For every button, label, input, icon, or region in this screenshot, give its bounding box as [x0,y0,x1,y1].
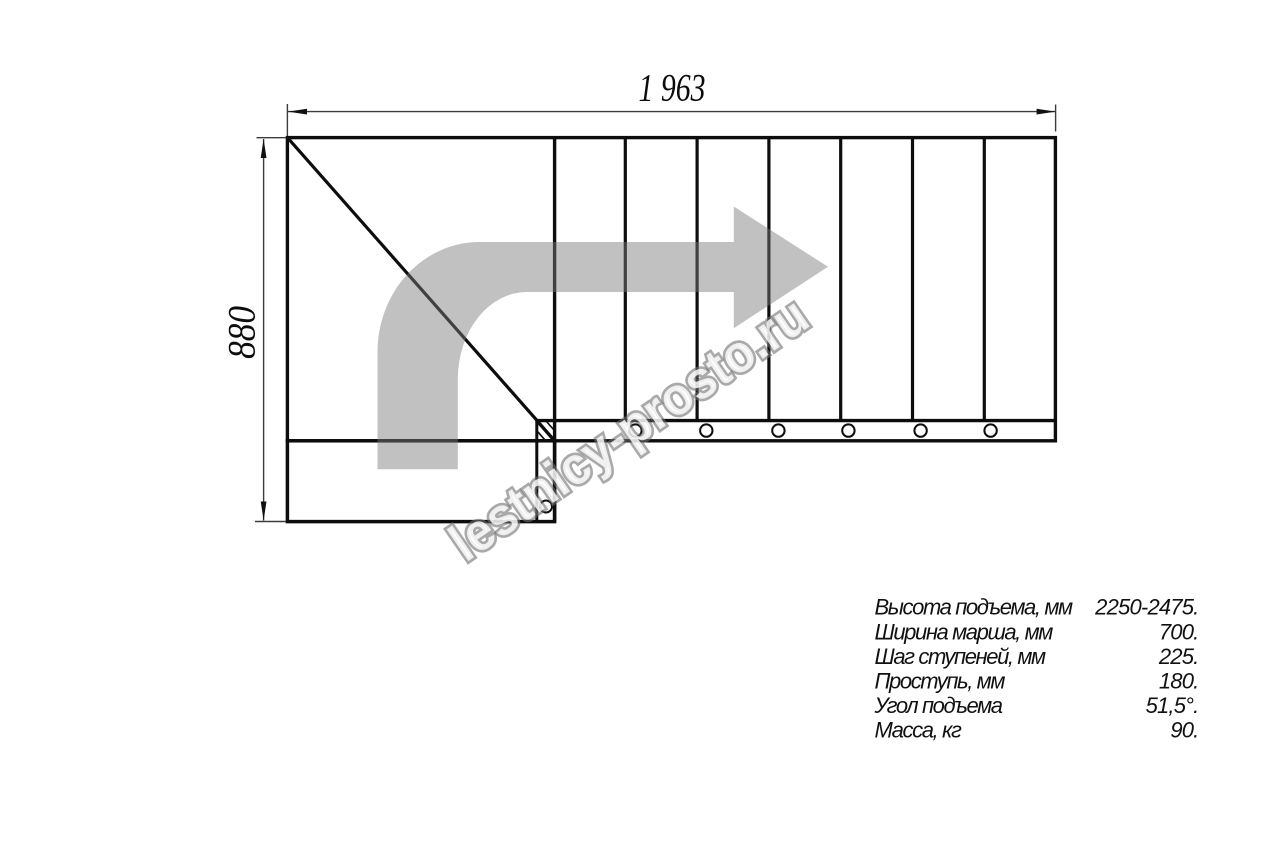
svg-text:880: 880 [220,306,264,359]
svg-text:Высота подъема, мм: Высота подъема, мм [875,595,1074,620]
svg-text:Масса, кг: Масса, кг [875,718,962,743]
svg-text:51,5°.: 51,5°. [1146,693,1199,718]
svg-text:lestnicy-prosto.ru: lestnicy-prosto.ru [439,286,819,573]
svg-text:180.: 180. [1159,668,1199,693]
svg-text:700.: 700. [1159,619,1199,644]
svg-text:90.: 90. [1170,718,1198,743]
svg-text:Шаг ступеней, мм: Шаг ступеней, мм [875,644,1047,669]
svg-text:Угол подъема: Угол подъема [874,693,1003,718]
svg-text:2250-2475.: 2250-2475. [1094,595,1198,620]
svg-text:Ширина марша, мм: Ширина марша, мм [875,619,1054,644]
svg-text:1 963: 1 963 [639,66,706,110]
svg-text:225.: 225. [1158,644,1199,669]
svg-text:Проступь, мм: Проступь, мм [875,668,1006,693]
